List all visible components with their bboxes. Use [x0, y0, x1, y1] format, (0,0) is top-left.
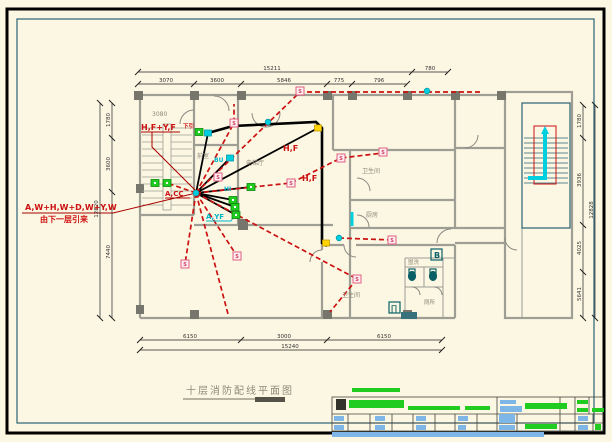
- dim-value: 15240: [281, 344, 299, 350]
- smoke-detector-icon: S: [287, 179, 295, 187]
- alarm-device-icon: [163, 180, 171, 187]
- smoke-detector-icon: S: [337, 154, 345, 162]
- bell-device-glyph: B: [434, 251, 440, 260]
- svg-text:S: S: [235, 254, 239, 260]
- room-washroom: 盥洗: [408, 258, 420, 266]
- inner-border: [17, 19, 594, 423]
- smoke-detector-icon: S: [181, 260, 189, 268]
- hi-label: HI: [224, 186, 231, 193]
- room-vestibule: 前室: [197, 152, 209, 160]
- dim-value: 12828: [589, 201, 595, 219]
- redaction-bars: [332, 388, 604, 437]
- junction-dot-icon: [265, 119, 271, 125]
- junction-dot-icon: [193, 190, 199, 196]
- alarm-device-icon: [247, 184, 255, 191]
- dim-value: 6150: [183, 334, 197, 340]
- title-text: 十层消防配线平面图: [186, 384, 294, 397]
- svg-text:S: S: [390, 238, 394, 244]
- stair-number: 3080: [152, 111, 167, 118]
- alarm-device-icon: [195, 129, 203, 136]
- room-elevator-hall: 电梯厅: [246, 159, 264, 167]
- svg-text:S: S: [216, 175, 220, 181]
- outer-border: [7, 9, 604, 433]
- dim-value: 1780: [577, 114, 583, 128]
- alarm-device-icon: [151, 180, 159, 187]
- riser-label-suffix: 下引: [183, 122, 194, 130]
- svg-text:S: S: [289, 181, 293, 187]
- dim-value: 3600: [106, 157, 112, 171]
- title-block: [332, 388, 604, 437]
- smoke-detector-icon: S: [353, 275, 361, 283]
- company-name-bar: [349, 400, 404, 408]
- dim-value: 7440: [106, 245, 112, 259]
- junction-dot-icon: [424, 88, 430, 94]
- room-wc: 厕所: [424, 298, 436, 306]
- smoke-detector-icon: S: [233, 252, 241, 260]
- smoke-detector-icon: S: [230, 119, 238, 127]
- drawing-title: 十层消防配线平面图: [183, 384, 294, 402]
- dim-value: 15211: [263, 66, 281, 72]
- feeder-note-line1: A,W+H,W+D,W+Y,W: [25, 203, 117, 212]
- tower-staircase: [522, 103, 570, 228]
- dim-value: 6150: [377, 334, 391, 340]
- stair-direction-arrow: [528, 133, 545, 178]
- riser-label: H,F+Y,F: [141, 123, 176, 132]
- bottom-highlight-bar: [332, 432, 544, 437]
- room-bathroom2: 卫生间: [342, 291, 360, 299]
- acc-label: A,CC: [165, 190, 183, 198]
- dim-value: 3070: [159, 78, 173, 84]
- dim-value: 1780: [106, 113, 112, 127]
- svg-text:S: S: [298, 89, 302, 95]
- dim-value: 775: [334, 78, 345, 84]
- riser-node-icon: [323, 240, 330, 246]
- dim-value: 3936: [577, 173, 583, 187]
- smoke-detector-icon: S: [296, 87, 304, 95]
- smoke-detector-icon: S: [379, 148, 387, 156]
- room-kitchen: 厨房: [366, 211, 378, 219]
- dim-value: 3600: [210, 78, 224, 84]
- riser-node-icon: [315, 125, 322, 131]
- svg-text:S: S: [381, 150, 385, 156]
- pi-device-glyph: ∏: [391, 304, 397, 313]
- stair-arrow-head: [541, 126, 549, 134]
- plan-devices: SSSSSSSSSS: [151, 87, 430, 283]
- cad-drawing-sheet: 1521178030703600584677579661503000615015…: [0, 0, 612, 442]
- dim-value: 5846: [277, 78, 291, 84]
- svg-text:S: S: [339, 156, 343, 162]
- cyan-device-icon: [205, 130, 212, 136]
- junction-dot-icon: [336, 235, 342, 241]
- company-logo: [336, 399, 346, 410]
- cyan-device-icon: [227, 155, 234, 161]
- dim-value: 4025: [577, 241, 583, 255]
- dim-value: 3000: [277, 334, 291, 340]
- smoke-detector-icon: S: [388, 236, 396, 244]
- svg-text:S: S: [355, 277, 359, 283]
- dark-equipment-bar: [401, 312, 417, 319]
- alarm-device-icon: [232, 212, 240, 219]
- alarm-device-icon: [231, 204, 239, 211]
- sheet-frames: [7, 9, 604, 433]
- floor-plan-svg: 1521178030703600584677579661503000615015…: [0, 0, 612, 442]
- hf-label-1: H,F: [283, 144, 298, 153]
- smoke-detector-icon: S: [214, 173, 222, 181]
- alarm-device-icon: [229, 197, 237, 204]
- dim-value: 780: [425, 66, 436, 72]
- dim-value: 5641: [577, 287, 583, 301]
- hf-label-2: H,F: [302, 174, 317, 183]
- svg-text:S: S: [183, 262, 187, 268]
- dim-value: 796: [374, 78, 385, 84]
- svg-text:S: S: [232, 121, 236, 127]
- ayf-label: A,YF: [206, 213, 224, 221]
- bu-label: BU: [214, 157, 224, 164]
- feeder-note-line2: 由下一层引来: [40, 214, 89, 224]
- room-bathroom: 卫生间: [362, 167, 380, 175]
